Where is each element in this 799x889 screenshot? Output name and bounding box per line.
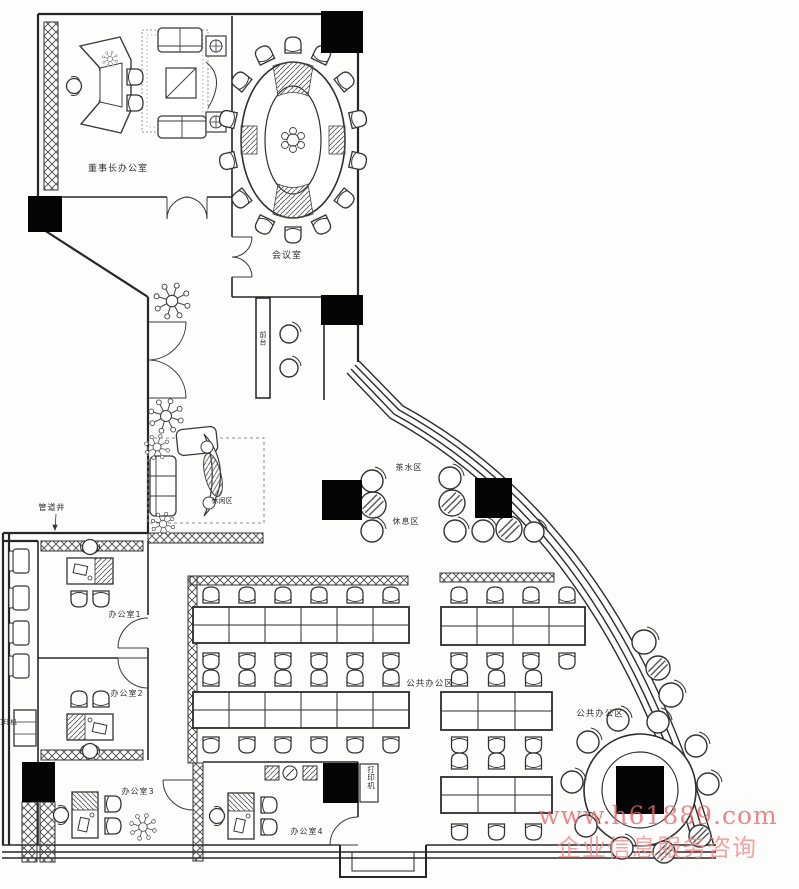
desk-chair bbox=[489, 824, 505, 840]
column bbox=[321, 295, 363, 325]
label-chairman-office: 董事长办公室 bbox=[88, 162, 148, 174]
desk-chair bbox=[239, 653, 255, 669]
desk-chair bbox=[311, 670, 327, 686]
desk-chair bbox=[489, 737, 505, 753]
desk-chair bbox=[559, 653, 575, 669]
label-rest-area: 休息区 bbox=[393, 516, 420, 526]
desk-chair bbox=[203, 587, 219, 603]
reception bbox=[256, 298, 270, 398]
tea-stool bbox=[524, 522, 544, 542]
door-office1 bbox=[118, 618, 148, 648]
conference-chair bbox=[218, 152, 237, 171]
desk-chair bbox=[275, 670, 291, 686]
desk-chair bbox=[523, 587, 539, 603]
chairman-office-furniture bbox=[67, 28, 227, 138]
tea-stool bbox=[472, 520, 494, 542]
column bbox=[22, 762, 55, 802]
desk-chair bbox=[526, 753, 542, 769]
conference-chair bbox=[285, 37, 301, 53]
tea-stool bbox=[444, 520, 466, 542]
round-table-chair bbox=[697, 773, 719, 795]
wall-chair bbox=[303, 766, 317, 780]
door-chairman-left-leaf bbox=[167, 197, 189, 219]
door-office3 bbox=[163, 780, 193, 810]
office4-wall-items bbox=[265, 766, 317, 780]
conference-chair bbox=[253, 44, 274, 65]
desk-chair bbox=[452, 824, 468, 840]
strip-office3-4-divider bbox=[193, 763, 203, 861]
conference-chair bbox=[285, 227, 301, 243]
door-conference-bottom-leaf bbox=[232, 257, 252, 277]
office4-desk bbox=[210, 793, 278, 839]
desk-chair bbox=[239, 670, 255, 686]
desk-chair bbox=[239, 587, 255, 603]
strip-lounge-bottom bbox=[148, 533, 263, 543]
plant-icon bbox=[130, 814, 157, 841]
desk-chair bbox=[383, 737, 399, 753]
tea-stool bbox=[361, 470, 383, 492]
desk-chair bbox=[383, 587, 399, 603]
pipe-shaft-leader bbox=[53, 514, 57, 530]
shaft-strip-topleft bbox=[44, 22, 58, 190]
desk-chair bbox=[526, 670, 542, 686]
door-corridor-top-leaf bbox=[148, 322, 186, 360]
desk-chair bbox=[383, 670, 399, 686]
label-open-office-left: 公共办公区 bbox=[406, 678, 454, 689]
tea-stool bbox=[439, 467, 461, 489]
desk-chair bbox=[347, 653, 363, 669]
lounge-sofa bbox=[150, 456, 176, 516]
round-table-chair bbox=[685, 735, 707, 757]
column bbox=[322, 480, 362, 520]
desk-chair bbox=[311, 737, 327, 753]
desk-chair bbox=[347, 670, 363, 686]
arc-chair bbox=[632, 630, 656, 654]
label-office3: 办公室3 bbox=[121, 786, 154, 796]
strip-deskblock-left bbox=[188, 576, 197, 763]
corridor-chair bbox=[9, 549, 29, 573]
desk-chair bbox=[239, 737, 255, 753]
desk-chair bbox=[311, 587, 327, 603]
conference-table bbox=[241, 62, 345, 218]
desk-chair bbox=[347, 587, 363, 603]
label-meeting-room: 会议室 bbox=[272, 249, 302, 261]
door-chairman-right-leaf bbox=[185, 197, 207, 219]
label-open-office-right: 公共办公区 bbox=[576, 708, 624, 719]
door-corridor-bottom-leaf bbox=[148, 360, 186, 398]
desk-chair bbox=[452, 670, 468, 686]
round-table-chair bbox=[561, 771, 583, 793]
desk-chair bbox=[311, 653, 327, 669]
office3-desk bbox=[54, 792, 122, 838]
label-reception: 前台 bbox=[260, 330, 267, 346]
printer-left-device bbox=[14, 710, 36, 746]
label-office2: 办公室2 bbox=[110, 688, 143, 698]
desk-chair bbox=[487, 653, 503, 669]
desk-chair bbox=[487, 587, 503, 603]
reception-stool bbox=[280, 359, 298, 377]
column bbox=[321, 11, 363, 53]
reception-counter bbox=[256, 298, 270, 398]
desk-chair bbox=[452, 737, 468, 753]
guest-chair bbox=[127, 95, 143, 111]
label-office4: 办公室4 bbox=[290, 826, 323, 836]
desk-chair bbox=[452, 753, 468, 769]
guest-chair bbox=[127, 69, 143, 85]
door-office4 bbox=[330, 817, 358, 845]
office2-desk bbox=[67, 691, 113, 759]
desk-chair bbox=[275, 587, 291, 603]
reception-stool bbox=[280, 325, 298, 343]
desk-chair bbox=[451, 653, 467, 669]
corridor-chair bbox=[9, 654, 29, 678]
conference-chair bbox=[349, 109, 368, 128]
strip-bottomleft-b bbox=[40, 802, 55, 862]
desk-chair bbox=[275, 737, 291, 753]
label-tea-area: 茶水区 bbox=[396, 462, 423, 472]
floorplan-image: 董事长办公室 会议室 前台 休闲区 茶水区 休息区 管道井 办公室1 办公室2 … bbox=[0, 0, 799, 889]
desk-chair bbox=[275, 653, 291, 669]
label-pipe-shaft: 管道井 bbox=[39, 502, 66, 512]
wall-diagonal bbox=[44, 230, 148, 297]
conference-chair bbox=[311, 215, 332, 236]
desk-chair bbox=[383, 653, 399, 669]
desk-chair bbox=[559, 587, 575, 603]
desk-chair bbox=[203, 670, 219, 686]
door-office2 bbox=[118, 658, 148, 688]
plant-icon bbox=[149, 399, 183, 433]
watermark-text: 企业信息服务咨询 bbox=[557, 834, 757, 862]
label-office1: 办公室1 bbox=[108, 609, 141, 619]
desk-chair bbox=[489, 753, 505, 769]
label-lounge: 休闲区 bbox=[212, 496, 233, 505]
desk-chair bbox=[347, 737, 363, 753]
round-table-chair bbox=[577, 731, 599, 753]
strip-bottomleft-a bbox=[22, 802, 37, 862]
label-printer-bottom: 打印机 bbox=[367, 764, 375, 790]
conference-chair bbox=[349, 152, 368, 171]
tea-stool bbox=[361, 520, 383, 542]
label-printer-left: 打印机 bbox=[0, 717, 17, 726]
watermark-url: www.h61889.com bbox=[538, 801, 778, 830]
arc-chair bbox=[659, 683, 683, 707]
desk-chair bbox=[523, 653, 539, 669]
plant-icon bbox=[154, 283, 190, 319]
desk-chair bbox=[451, 587, 467, 603]
executive-chair bbox=[67, 77, 82, 96]
corridor-chair bbox=[9, 621, 29, 645]
column bbox=[475, 478, 512, 518]
desk-chair bbox=[203, 653, 219, 669]
floorplan-svg: 董事长办公室 会议室 前台 休闲区 茶水区 休息区 管道井 办公室1 办公室2 … bbox=[0, 0, 799, 889]
conference-chair bbox=[334, 188, 356, 210]
conference-chair bbox=[253, 215, 274, 236]
door-conference-top-leaf bbox=[232, 237, 252, 257]
vestibule-mat bbox=[352, 852, 414, 871]
corridor-chair bbox=[9, 586, 29, 610]
desk-chair bbox=[489, 670, 505, 686]
vestibule bbox=[340, 845, 426, 877]
desk-chair bbox=[526, 737, 542, 753]
conference-chair bbox=[334, 70, 356, 92]
strip-deskblock-top-right bbox=[440, 573, 554, 582]
column bbox=[28, 196, 62, 232]
wall-chair bbox=[265, 766, 279, 780]
strip-deskblock-top-left bbox=[190, 576, 408, 585]
desk-chair bbox=[203, 737, 219, 753]
round-table-chair bbox=[647, 711, 669, 733]
column bbox=[323, 763, 358, 803]
